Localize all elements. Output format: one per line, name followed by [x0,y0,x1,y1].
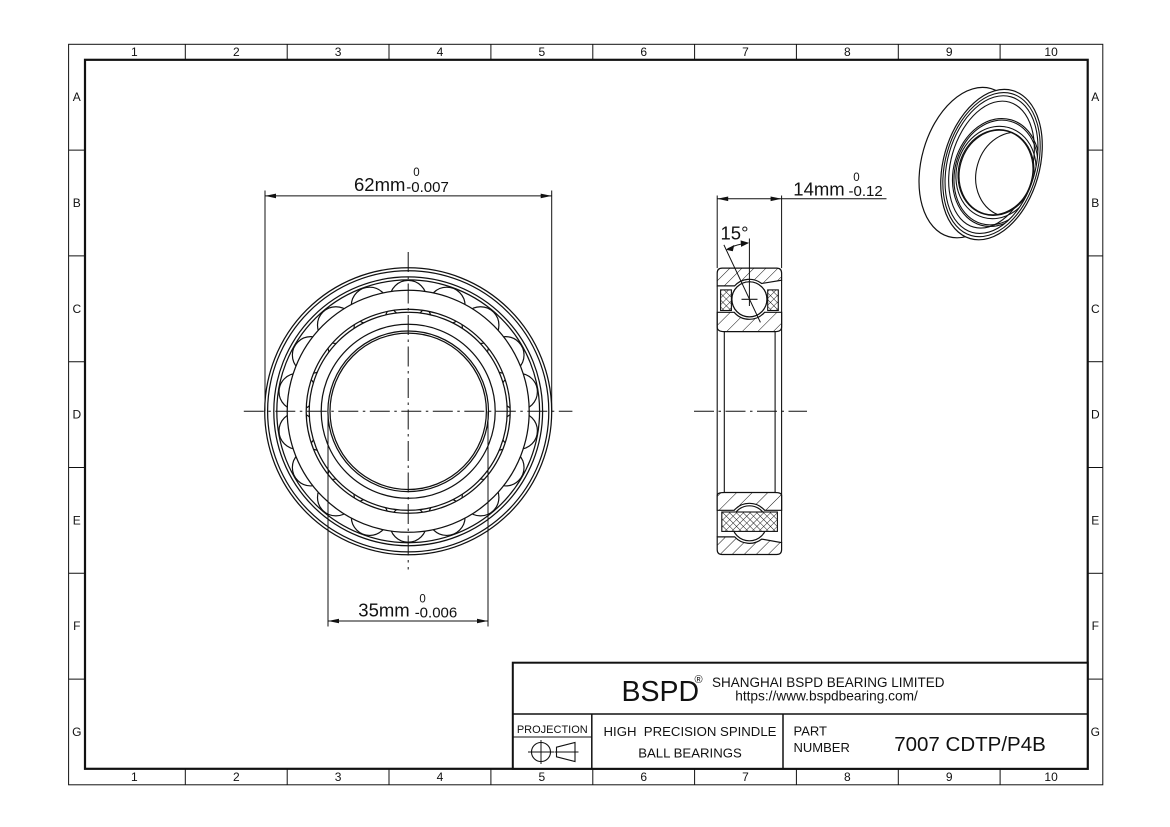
svg-text:A: A [1091,90,1099,104]
svg-text:®: ® [695,674,703,686]
svg-text:A: A [73,90,81,104]
svg-text:E: E [1091,513,1099,527]
svg-text:10: 10 [1044,770,1058,784]
svg-text:-0.006: -0.006 [415,605,458,622]
svg-text:E: E [73,513,81,527]
svg-text:8: 8 [844,45,851,59]
svg-text:14mm: 14mm [793,178,844,199]
svg-text:NUMBER: NUMBER [794,740,850,755]
svg-text:D: D [72,408,81,422]
svg-text:10: 10 [1044,45,1058,59]
svg-text:BSPD: BSPD [622,676,700,708]
svg-text:D: D [1091,408,1100,422]
svg-text:https://www.bspdbearing.com/: https://www.bspdbearing.com/ [735,689,918,704]
svg-text:15°: 15° [721,223,749,244]
svg-text:2: 2 [233,45,240,59]
svg-text:9: 9 [946,45,953,59]
svg-text:2: 2 [233,770,240,784]
svg-text:5: 5 [538,45,545,59]
svg-text:7: 7 [742,45,749,59]
svg-text:BALL BEARINGS: BALL BEARINGS [638,745,742,760]
svg-text:9: 9 [946,770,953,784]
svg-text:F: F [73,619,80,633]
svg-text:8: 8 [844,770,851,784]
svg-text:62mm: 62mm [354,174,405,195]
svg-text:G: G [72,725,81,739]
svg-text:PART: PART [794,724,828,739]
svg-text:F: F [1092,619,1099,633]
svg-text:7007 CDTP/P4B: 7007 CDTP/P4B [894,733,1046,756]
svg-text:3: 3 [335,770,342,784]
svg-text:35mm: 35mm [358,600,409,621]
svg-text:C: C [1091,302,1100,316]
svg-text:HIGH PRECISION SPINDLE: HIGH PRECISION SPINDLE [604,724,777,739]
svg-text:1: 1 [131,770,138,784]
svg-text:-0.12: -0.12 [849,183,883,200]
svg-text:6: 6 [640,45,647,59]
svg-text:5: 5 [538,770,545,784]
svg-text:B: B [1091,196,1099,210]
svg-text:-0.007: -0.007 [406,179,449,196]
svg-text:4: 4 [437,45,444,59]
svg-text:3: 3 [335,45,342,59]
svg-text:0: 0 [413,167,419,179]
svg-text:C: C [72,302,81,316]
svg-text:6: 6 [640,770,647,784]
svg-text:B: B [73,196,81,210]
svg-text:PROJECTION: PROJECTION [517,724,588,736]
svg-text:G: G [1091,725,1100,739]
svg-text:4: 4 [437,770,444,784]
svg-text:7: 7 [742,770,749,784]
svg-text:1: 1 [131,45,138,59]
